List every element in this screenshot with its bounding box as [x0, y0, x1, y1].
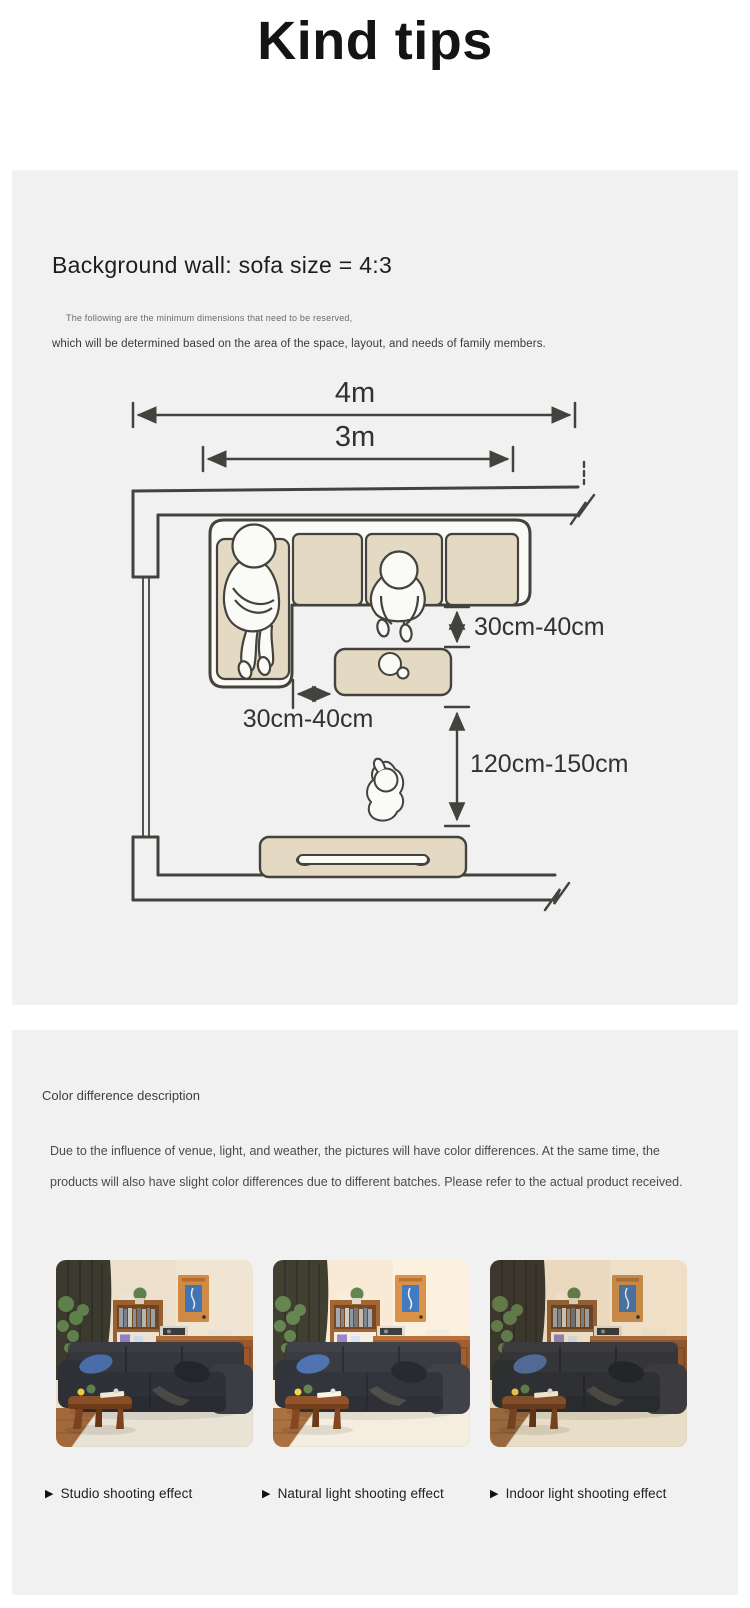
- tv-icon: [297, 855, 429, 865]
- dimension-table-to-tv: [445, 707, 469, 826]
- living-room-scene: [490, 1260, 687, 1447]
- dog-icon: [367, 759, 403, 821]
- living-room-scene: [56, 1260, 253, 1447]
- caption-row: ▶ Studio shooting effect ▶ Natural light…: [45, 1486, 708, 1501]
- size-panel-heading: Background wall: sofa size = 4:3: [52, 170, 698, 279]
- caption-studio: ▶ Studio shooting effect: [45, 1486, 262, 1501]
- dimension-sofa-to-table-horizontal: [293, 680, 329, 708]
- seat-cushion-1: [293, 534, 362, 605]
- photo-grid: [56, 1260, 708, 1447]
- dim-sofa-to-table-h-label: 30cm-40cm: [243, 705, 374, 733]
- caption-natural: ▶ Natural light shooting effect: [262, 1486, 484, 1501]
- size-note-small: The following are the minimum dimensions…: [66, 313, 698, 323]
- coffee-table: [335, 649, 451, 695]
- play-triangle-icon: ▶: [45, 1487, 54, 1500]
- play-triangle-icon: ▶: [490, 1487, 499, 1500]
- color-panel-heading: Color difference description: [42, 1030, 708, 1103]
- play-triangle-icon: ▶: [262, 1487, 271, 1500]
- size-note: which will be determined based on the ar…: [52, 338, 698, 350]
- tv-stand: [260, 837, 466, 877]
- caption-indoor: ▶ Indoor light shooting effect: [484, 1486, 694, 1501]
- wall-break-bottom-icon: [545, 883, 569, 910]
- dim-room-width-label: 4m: [335, 377, 375, 409]
- color-panel-body: Due to the influence of venue, light, an…: [50, 1136, 708, 1198]
- living-room-scene: [273, 1260, 470, 1447]
- photo-natural-light: [273, 1260, 470, 1447]
- caption-natural-label: Natural light shooting effect: [278, 1486, 444, 1501]
- dim-sofa-to-table-v-label: 30cm-40cm: [474, 613, 605, 641]
- caption-studio-label: Studio shooting effect: [61, 1486, 193, 1501]
- photo-studio-shooting: [56, 1260, 253, 1447]
- color-difference-panel: Color difference description Due to the …: [12, 1030, 738, 1595]
- size-guide-panel: Background wall: sofa size = 4:3 The fol…: [12, 170, 738, 1005]
- caption-indoor-label: Indoor light shooting effect: [506, 1486, 667, 1501]
- page-header: Kind tips: [0, 0, 750, 170]
- photo-indoor-light: [490, 1260, 687, 1447]
- page-title: Kind tips: [0, 0, 750, 72]
- seat-cushion-3: [446, 534, 518, 605]
- window-wall-lines: [143, 577, 149, 837]
- dimension-sofa-to-table-vertical: [445, 607, 469, 647]
- dim-table-to-tv-label: 120cm-150cm: [470, 750, 628, 778]
- dim-sofa-wall-width-label: 3m: [335, 421, 375, 453]
- room-layout-diagram: 4m 3m: [12, 374, 738, 934]
